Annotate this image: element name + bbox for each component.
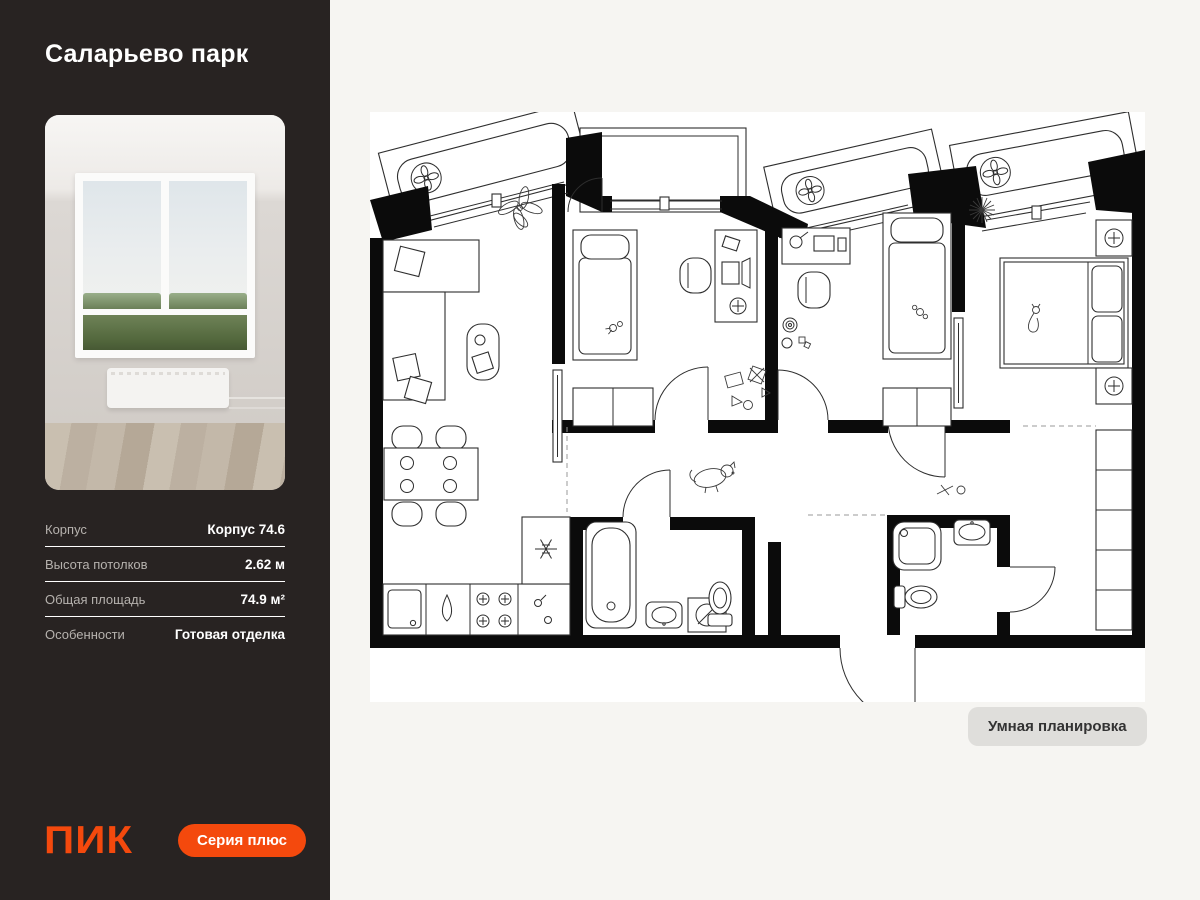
detail-value: Готовая отделка xyxy=(175,627,285,642)
pik-logo[interactable]: ПИК xyxy=(44,818,133,862)
bathroom2-fixtures xyxy=(893,485,990,608)
detail-value: 74.9 м² xyxy=(240,592,285,607)
project-title: Саларьево парк xyxy=(45,40,305,69)
detail-row-features: Особенности Готовая отделка xyxy=(45,617,285,651)
details-list: Корпус Корпус 74.6 Высота потолков 2.62 … xyxy=(45,512,285,651)
dog-icon xyxy=(690,462,735,493)
photo-window xyxy=(75,173,255,358)
kitchen-counter xyxy=(383,517,570,635)
dining-set xyxy=(384,426,478,526)
floor-plan-svg xyxy=(370,112,1145,702)
toilet-icon xyxy=(708,582,732,626)
apartment-photo xyxy=(45,115,285,490)
radiator xyxy=(107,368,229,408)
smart-layout-button[interactable]: Умная планировка xyxy=(968,707,1147,746)
toilet-icon xyxy=(894,586,937,608)
bedroom1-furniture xyxy=(573,230,757,426)
detail-label: Корпус xyxy=(45,522,87,537)
photo-floor xyxy=(45,423,285,491)
radiator-pipes xyxy=(229,397,285,409)
main-area: Умная планировка xyxy=(330,0,1200,900)
detail-row-ceiling-height: Высота потолков 2.62 м xyxy=(45,547,285,582)
bathroom1-fixtures xyxy=(586,522,732,632)
outer-walls xyxy=(370,132,1145,648)
page: Саларьево парк Корпус Корпус 74.6 Высота… xyxy=(0,0,1200,900)
detail-row-total-area: Общая площадь 74.9 м² xyxy=(45,582,285,617)
master-bedroom-furniture xyxy=(969,197,1132,404)
detail-row-korpus: Корпус Корпус 74.6 xyxy=(45,512,285,547)
floor-plan-card xyxy=(370,112,1145,702)
toys-cluster xyxy=(725,366,770,409)
sidebar: Саларьево парк Корпус Корпус 74.6 Высота… xyxy=(0,0,330,900)
detail-label: Особенности xyxy=(45,627,125,642)
detail-label: Высота потолков xyxy=(45,557,148,572)
series-plus-badge[interactable]: Серия плюс xyxy=(178,824,306,857)
detail-label: Общая площадь xyxy=(45,592,145,607)
bedroom2-furniture xyxy=(782,213,951,426)
detail-value: Корпус 74.6 xyxy=(207,522,285,537)
detail-value: 2.62 м xyxy=(245,557,285,572)
